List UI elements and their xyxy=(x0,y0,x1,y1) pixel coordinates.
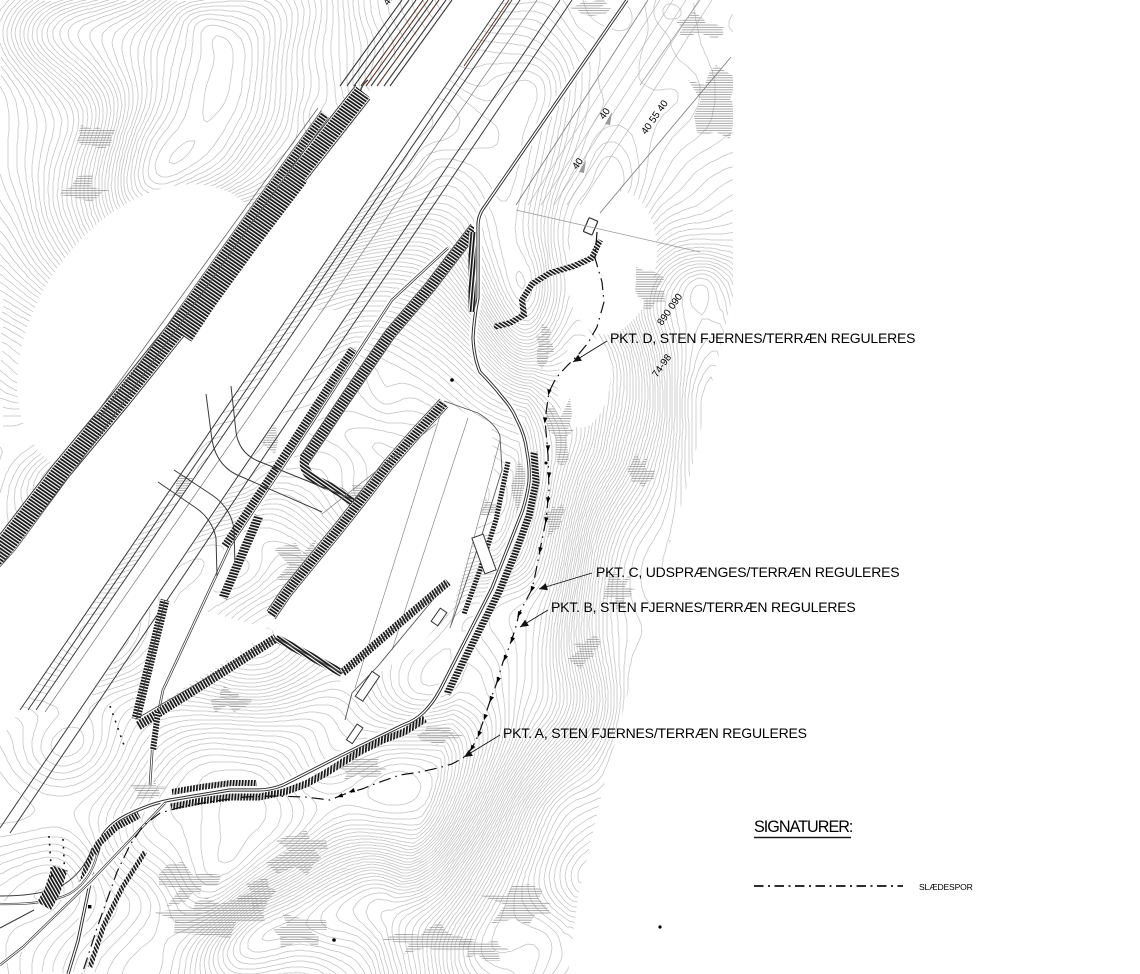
svg-text:PKT. C, UDSPRÆNGES/TERRÆN REGU: PKT. C, UDSPRÆNGES/TERRÆN REGULERES xyxy=(596,564,899,580)
svg-text:PKT. A, STEN FJERNES/TERRÆN RE: PKT. A, STEN FJERNES/TERRÆN REGULERES xyxy=(503,725,807,741)
svg-text:SIGNATURER:: SIGNATURER: xyxy=(754,818,853,836)
svg-text:PKT. B, STEN FJERNES/TERRÆN RE: PKT. B, STEN FJERNES/TERRÆN REGULERES xyxy=(551,599,856,615)
svg-text:PKT. D, STEN FJERNES/TERRÆN RE: PKT. D, STEN FJERNES/TERRÆN REGULERES xyxy=(610,330,915,346)
svg-text:SLÆDESPOR: SLÆDESPOR xyxy=(919,882,973,892)
